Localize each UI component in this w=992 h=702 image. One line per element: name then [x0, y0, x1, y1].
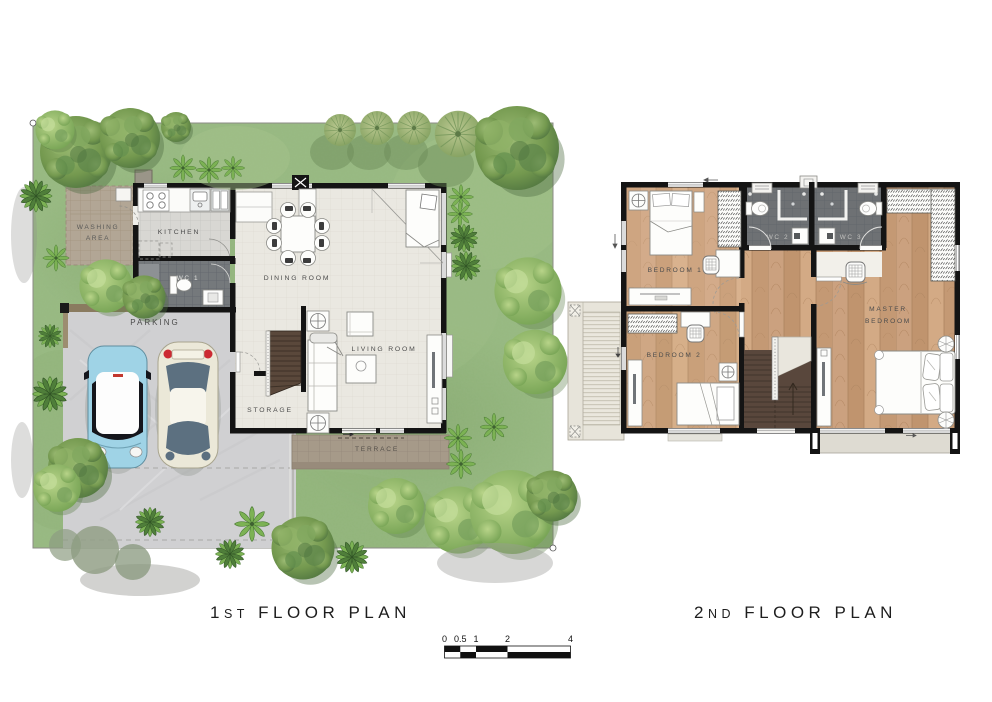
- svg-text:BEDROOM 1: BEDROOM 1: [648, 267, 703, 274]
- svg-text:0: 0: [442, 634, 447, 644]
- svg-text:DINING ROOM: DINING ROOM: [264, 275, 331, 282]
- svg-text:STORAGE: STORAGE: [247, 407, 293, 414]
- svg-text:LIVING ROOM: LIVING ROOM: [351, 346, 416, 353]
- svg-text:BEDROOM: BEDROOM: [865, 318, 911, 325]
- svg-text:4: 4: [568, 634, 573, 644]
- svg-text:WC 2: WC 2: [767, 234, 789, 241]
- svg-text:MASTER: MASTER: [869, 306, 907, 313]
- svg-text:2: 2: [505, 634, 510, 644]
- svg-text:1: 1: [473, 634, 478, 644]
- svg-text:TERRACE: TERRACE: [355, 446, 399, 453]
- svg-text:0.5: 0.5: [454, 634, 467, 644]
- svg-text:PARKING: PARKING: [130, 318, 179, 327]
- svg-text:WASHING: WASHING: [77, 224, 119, 231]
- svg-text:KITCHEN: KITCHEN: [158, 229, 200, 236]
- svg-text:AREA: AREA: [86, 235, 110, 242]
- svg-text:WC 1: WC 1: [177, 275, 199, 282]
- svg-text:WC 3: WC 3: [840, 234, 862, 241]
- svg-text:BEDROOM 2: BEDROOM 2: [647, 352, 702, 359]
